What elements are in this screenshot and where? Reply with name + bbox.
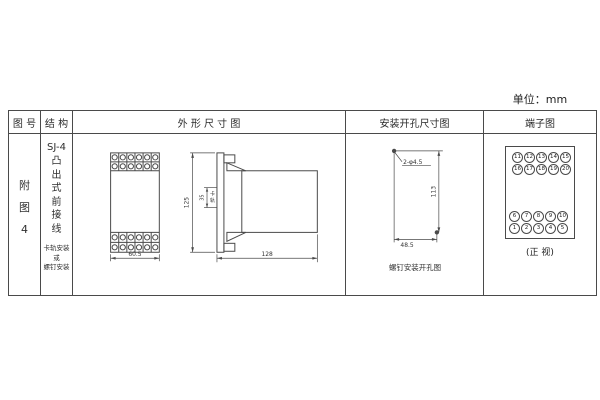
terminal-10: 10 (557, 211, 568, 222)
front-width-dim: 60.5 (128, 251, 141, 258)
screw-terminal (152, 155, 157, 160)
terminal-20: 20 (560, 164, 571, 175)
mount-line: 卡轨安装 (44, 244, 70, 254)
header-outline: 外 形 尺 寸 图 (73, 111, 346, 134)
figure-no-cell: 附 图 4 (9, 134, 41, 295)
terminal-cell: 11121314151617181920 67891012345 (正 视) (484, 134, 596, 295)
terminal-1: 1 (509, 223, 520, 234)
type-char: 线 (52, 223, 62, 237)
screw-terminal (144, 245, 149, 250)
terminal-group-top: 11121314151617181920 (512, 152, 571, 175)
side-depth-dim: 128 (261, 251, 273, 258)
header-terminal: 端子图 (484, 111, 596, 134)
side-view-case (241, 171, 317, 233)
screw-terminal (144, 235, 149, 240)
figure-no-char: 4 (21, 219, 28, 241)
figure-no-char: 附 (19, 175, 30, 197)
screw-terminal (136, 155, 141, 160)
side-height-dim: 125 (183, 197, 190, 209)
screw-terminal (112, 155, 117, 160)
terminal-caption: (正 视) (526, 245, 554, 258)
terminal-13: 13 (536, 152, 547, 163)
screw-terminal (136, 235, 141, 240)
screw-terminal (144, 164, 149, 169)
mount-line: 螺钉安装 (44, 263, 70, 273)
terminal-screws (110, 153, 159, 252)
screw-terminal (152, 164, 157, 169)
screw-terminal (152, 235, 157, 240)
screw-terminal (128, 245, 133, 250)
type-char: 出 (52, 169, 62, 183)
terminal-15: 15 (560, 152, 571, 163)
screw-terminal (112, 235, 117, 240)
header-structure: 结 构 (41, 111, 73, 134)
screw-terminal (128, 235, 133, 240)
install-cell: 2-φ4.5 113 48.5 螺钉安装开孔图 (346, 134, 484, 295)
screw-terminal (144, 155, 149, 160)
header-figure-no: 图 号 (9, 111, 41, 134)
terminal-11: 11 (512, 152, 523, 163)
screw-terminal (136, 245, 141, 250)
unit-label: 单位：mm (492, 91, 588, 107)
terminal-19: 19 (548, 164, 559, 175)
structure-type-label: 凸 出 式 前 接 线 (52, 155, 62, 236)
terminal-4: 4 (545, 223, 556, 234)
rail-label: 卡 (209, 191, 214, 198)
screw-terminal (112, 164, 117, 169)
terminal-6: 6 (509, 211, 520, 222)
screw-terminal (152, 245, 157, 250)
screw-terminal (120, 235, 125, 240)
model-label: SJ-4 (47, 142, 66, 153)
type-char: 凸 (52, 155, 62, 169)
rail-label: 轨 (209, 197, 214, 204)
vertical-dim: 113 (430, 186, 437, 198)
outline-cell: 60.5 125 35 卡 (73, 134, 346, 295)
screw-terminal (136, 164, 141, 169)
mount-hole (435, 230, 439, 234)
terminal-16: 16 (512, 164, 523, 175)
screw-terminal (112, 245, 117, 250)
mount-hole (392, 149, 396, 153)
type-char: 接 (52, 209, 62, 223)
spec-table: 图 号 结 构 外 形 尺 寸 图 安装开孔尺寸图 端子图 附 图 4 SJ-4… (8, 110, 597, 296)
outline-dimension-drawing: 60.5 125 35 卡 (74, 134, 345, 295)
terminal-2: 2 (521, 223, 532, 234)
screw-terminal (120, 245, 125, 250)
terminal-group-bottom: 67891012345 (509, 211, 568, 234)
terminal-5: 5 (557, 223, 568, 234)
install-hole-drawing: 2-φ4.5 113 48.5 螺钉安装开孔图 (346, 134, 483, 295)
terminal-17: 17 (524, 164, 535, 175)
terminal-7: 7 (521, 211, 532, 222)
header-install: 安装开孔尺寸图 (346, 111, 484, 134)
type-char: 前 (52, 196, 62, 210)
holes-label: 2-φ4.5 (403, 159, 423, 166)
terminal-box: 11121314151617181920 67891012345 (505, 146, 575, 239)
terminal-14: 14 (548, 152, 559, 163)
terminal-18: 18 (536, 164, 547, 175)
mount-note: 卡轨安装 或 螺钉安装 (44, 244, 70, 273)
terminal-8: 8 (533, 211, 544, 222)
structure-cell: SJ-4 凸 出 式 前 接 线 卡轨安装 或 螺钉安装 (41, 134, 73, 295)
terminal-3: 3 (533, 223, 544, 234)
terminal-12: 12 (524, 152, 535, 163)
mount-line: 或 (44, 254, 70, 264)
terminal-9: 9 (545, 211, 556, 222)
horizontal-dim: 48.5 (400, 242, 413, 249)
screw-terminal (128, 155, 133, 160)
install-caption: 螺钉安装开孔图 (389, 262, 441, 272)
screw-terminal (120, 155, 125, 160)
figure-no-char: 图 (19, 197, 30, 219)
side-view-bezel (216, 153, 223, 252)
screw-terminal (120, 164, 125, 169)
rail-width-dim: 35 (199, 194, 205, 200)
type-char: 式 (52, 182, 62, 196)
screw-terminal (128, 164, 133, 169)
